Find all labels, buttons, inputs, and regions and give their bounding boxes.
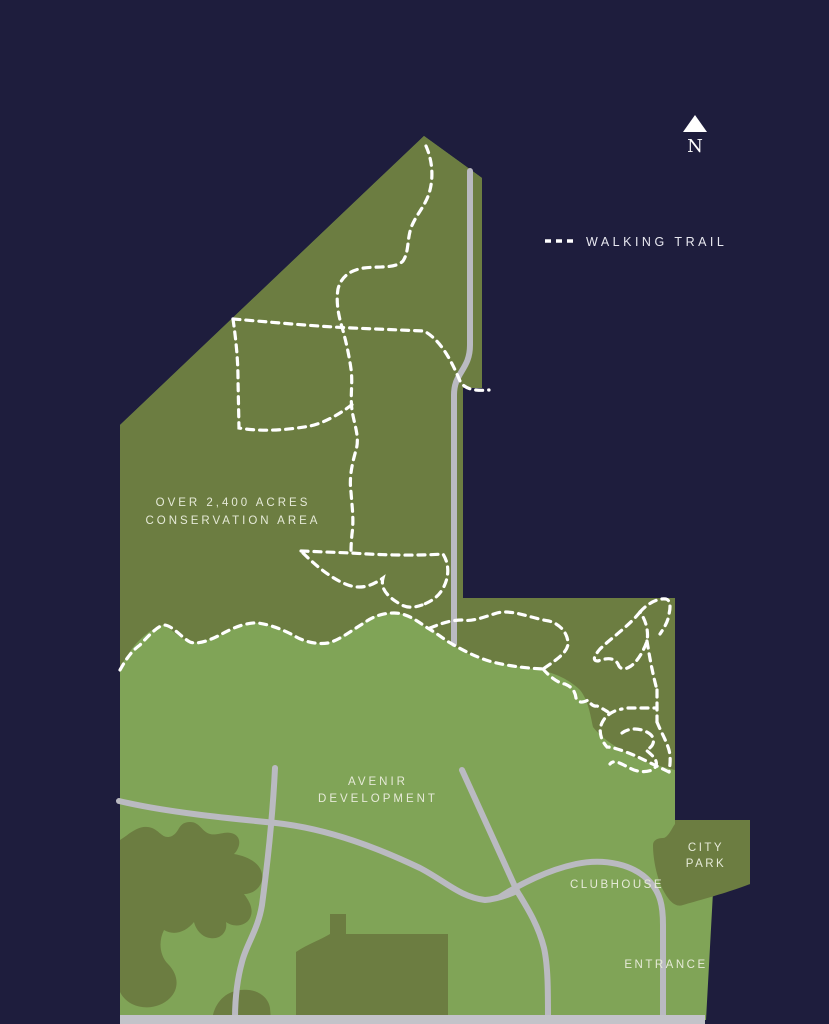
clubhouse-label: CLUBHOUSE (570, 879, 664, 891)
city-park-label-line1: CITY (688, 842, 724, 854)
road-bottom (120, 1015, 705, 1024)
development-label-line1: AVENIR (348, 776, 408, 788)
legend-label: WALKING TRAIL (586, 235, 727, 249)
conservation-label-line2: CONSERVATION AREA (146, 515, 321, 527)
map-canvas: WALKING TRAIL N OVER 2,400 ACRES CONSERV… (0, 0, 829, 1024)
conservation-label-line1: OVER 2,400 ACRES (156, 497, 311, 509)
city-park-label-line2: PARK (686, 858, 726, 870)
development-label-line2: DEVELOPMENT (318, 793, 438, 805)
entrance-label: ENTRANCE (624, 959, 707, 971)
avenir-map: WALKING TRAIL N OVER 2,400 ACRES CONSERV… (0, 0, 829, 1024)
north-label: N (687, 136, 703, 157)
